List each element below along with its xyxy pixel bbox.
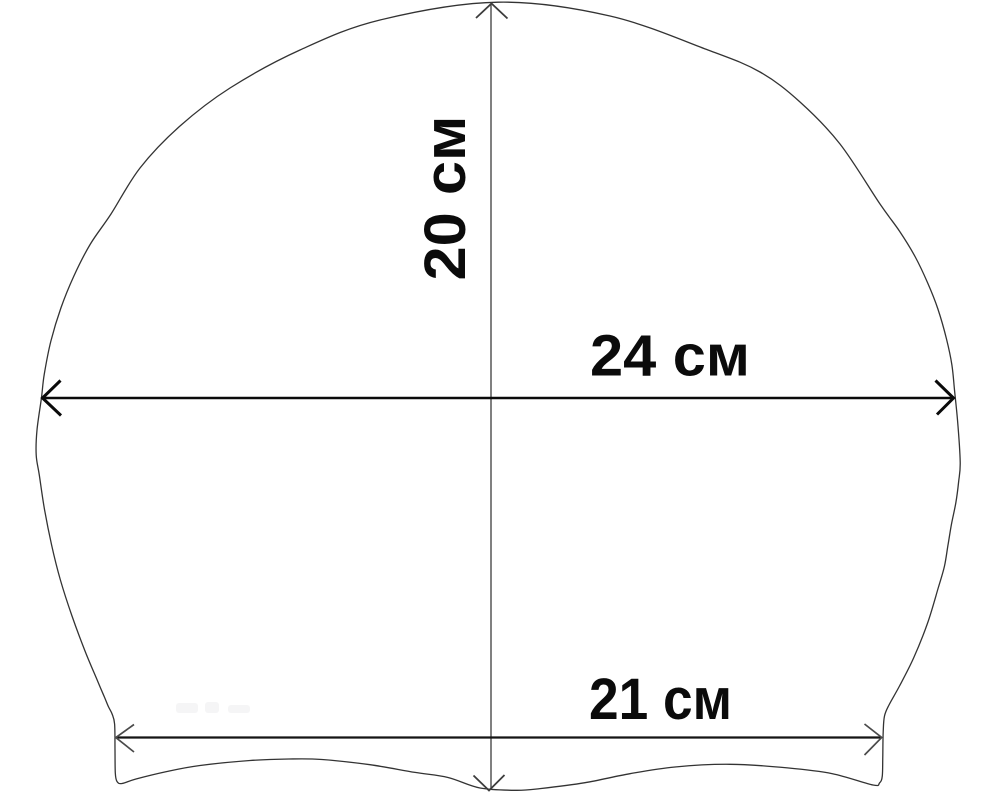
svg-text:21 см: 21 см [589,667,732,732]
svg-text:24 см: 24 см [590,324,750,389]
svg-text:20 см: 20 см [413,116,478,281]
